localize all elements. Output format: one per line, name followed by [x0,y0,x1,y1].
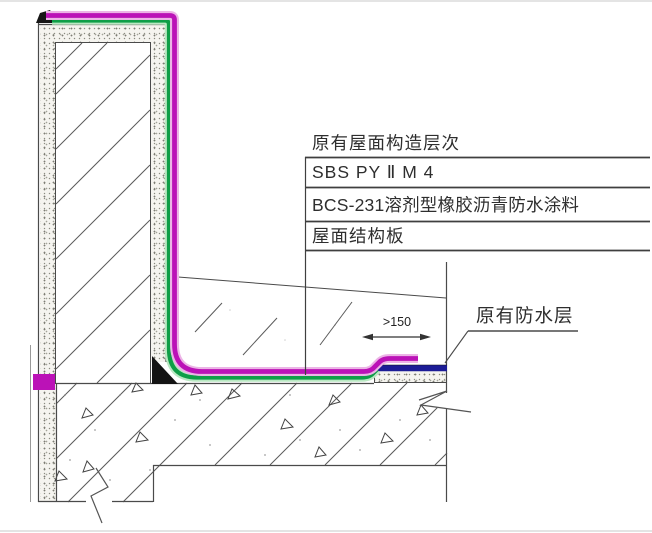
roof-slab-hatching [56,383,447,502]
membrane-line [46,16,418,372]
layer-callout-row-slab: 屋面结构板 [312,226,405,247]
layer-callout-row-sbs: SBS PY Ⅱ M 4 [312,162,434,183]
existing-waterproof-leader [445,331,468,363]
existing-waterproof-label: 原有防水层 [476,305,574,327]
parapet-wall-hatching [56,43,150,383]
structure-outlines [31,22,448,502]
lap-dimension-label: >150 [372,315,422,330]
construction-detail-drawing: 原有屋面构造层次 SBS PY Ⅱ M 4 BCS-231溶剂型橡胶沥青防水涂料… [0,0,652,533]
lap-dimension [362,334,431,340]
dimension-arrow-left [362,334,373,340]
layer-callout-row-bcs: BCS-231溶剂型橡胶沥青防水涂料 [312,195,579,216]
existing-fill-hatch-strokes [195,302,352,355]
membrane-halo [46,16,418,372]
detail-linework [0,0,652,533]
roof-slope-line [178,277,446,298]
concrete-triangle-symbols [55,383,428,481]
layer-callout-title: 原有屋面构造层次 [312,133,460,154]
dimension-arrow-right [420,334,431,340]
membrane-wall-block [33,374,55,390]
concrete-speckle-dots [64,309,431,481]
break-gap-bottom [86,496,112,506]
